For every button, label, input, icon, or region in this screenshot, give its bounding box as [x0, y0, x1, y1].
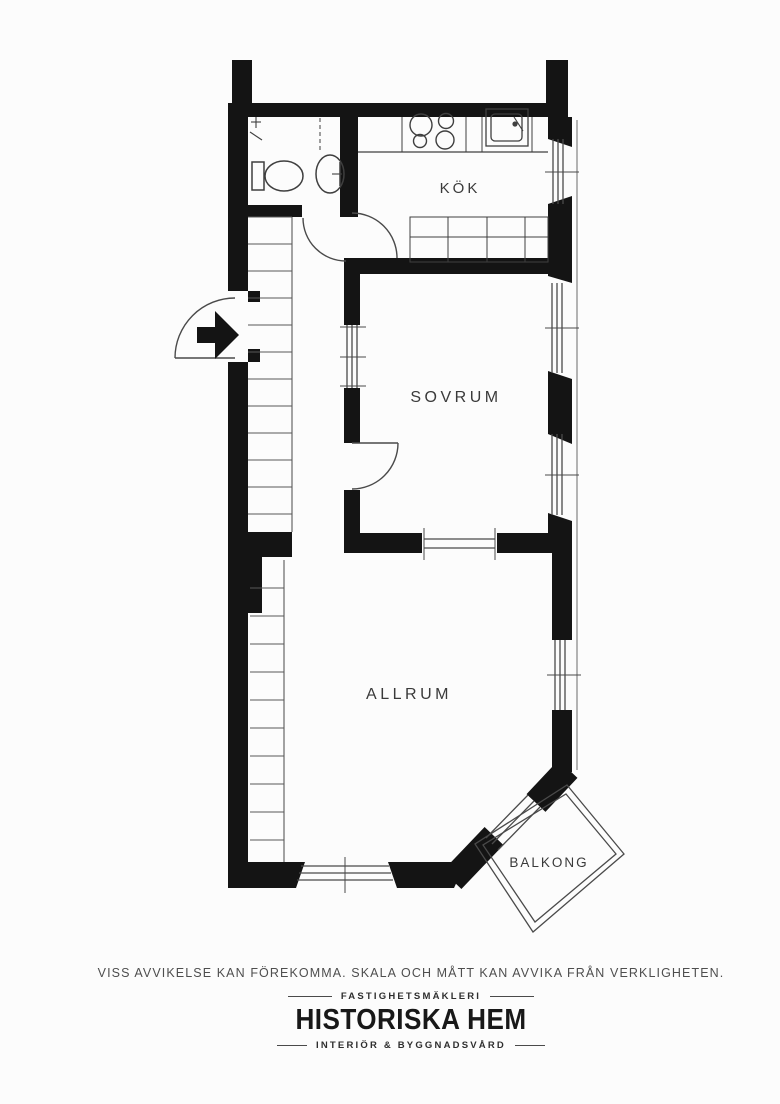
- kitchen-bench-grid: [410, 217, 548, 262]
- brand-tagline-bottom-row: INTERIÖR & BYGGNADSVÅRD: [42, 1040, 780, 1051]
- wall-bottom-left: [228, 862, 305, 888]
- wall-sovrum-bottom-right: [497, 533, 572, 553]
- window-kitchen: [545, 139, 579, 204]
- brand-tagline-top: FASTIGHETSMÄKLERI: [341, 991, 481, 1002]
- wall-left-upper: [228, 103, 248, 291]
- rule-right: [490, 996, 534, 997]
- wall-diag-upper: [536, 769, 568, 803]
- entry: [197, 311, 239, 359]
- bathroom-symbol: [250, 117, 262, 140]
- room-label-sovrum: SOVRUM: [410, 389, 501, 406]
- closet-hall: [248, 217, 292, 532]
- wall-stub-top-left: [232, 60, 252, 104]
- wall-allrum-right-upper: [552, 553, 572, 640]
- window-sovrum-2: [545, 434, 579, 515]
- wall-allrum-right-lower: [552, 710, 572, 772]
- room-label-kok: KÖK: [440, 179, 481, 197]
- window-sovrum-1: [545, 283, 579, 373]
- wall-bath-bottom: [248, 205, 302, 217]
- wall-top: [228, 103, 568, 117]
- stove-icon: [410, 114, 454, 150]
- entry-arrow-icon: [215, 311, 239, 359]
- door-bathroom-arc: [303, 218, 346, 261]
- brand-name: HISTORISKA HEM: [79, 1004, 743, 1037]
- opening-sovrum-allrum: [424, 528, 495, 560]
- balcony-door: [486, 795, 540, 850]
- floor-plan: KÖK SOVRUM ALLRUM BALKONG: [0, 0, 780, 960]
- room-label-balkong: BALKONG: [509, 855, 588, 870]
- doors: [175, 213, 398, 489]
- brand-tagline-bottom: INTERIÖR & BYGGNADSVÅRD: [316, 1040, 506, 1051]
- windows: [297, 120, 581, 893]
- window-sovrum-left: [340, 325, 366, 388]
- door-kitchen-arc: [352, 213, 397, 258]
- brand-tagline-top-row: FASTIGHETSMÄKLERI: [42, 991, 780, 1002]
- bathroom-fixtures: [250, 117, 344, 193]
- toilet-icon: [252, 161, 303, 191]
- wall-left-lower: [228, 362, 248, 862]
- bathroom-sink-icon: [316, 155, 344, 193]
- footer: VISS AVVIKELSE KAN FÖREKOMMA. SKALA OCH …: [0, 966, 780, 1051]
- window-allrum-right: [547, 640, 581, 710]
- rule-right: [515, 1045, 545, 1046]
- walls: [228, 60, 572, 888]
- disclaimer-text: VISS AVVIKELSE KAN FÖREKOMMA. SKALA OCH …: [42, 966, 780, 980]
- room-label-allrum: ALLRUM: [366, 686, 452, 703]
- rule-left: [288, 996, 332, 997]
- floor-plan-page: KÖK SOVRUM ALLRUM BALKONG VISS AVVIKELSE…: [0, 0, 780, 1104]
- entry-arrow-shaft: [197, 327, 215, 343]
- rule-left: [277, 1045, 307, 1046]
- wall-stub-top-right: [546, 60, 568, 104]
- door-sovrum-arc: [352, 443, 398, 489]
- wall-sovrum-top: [344, 258, 572, 274]
- window-allrum-bottom: [297, 857, 393, 893]
- wall-sovrum-bottom-left: [344, 533, 422, 553]
